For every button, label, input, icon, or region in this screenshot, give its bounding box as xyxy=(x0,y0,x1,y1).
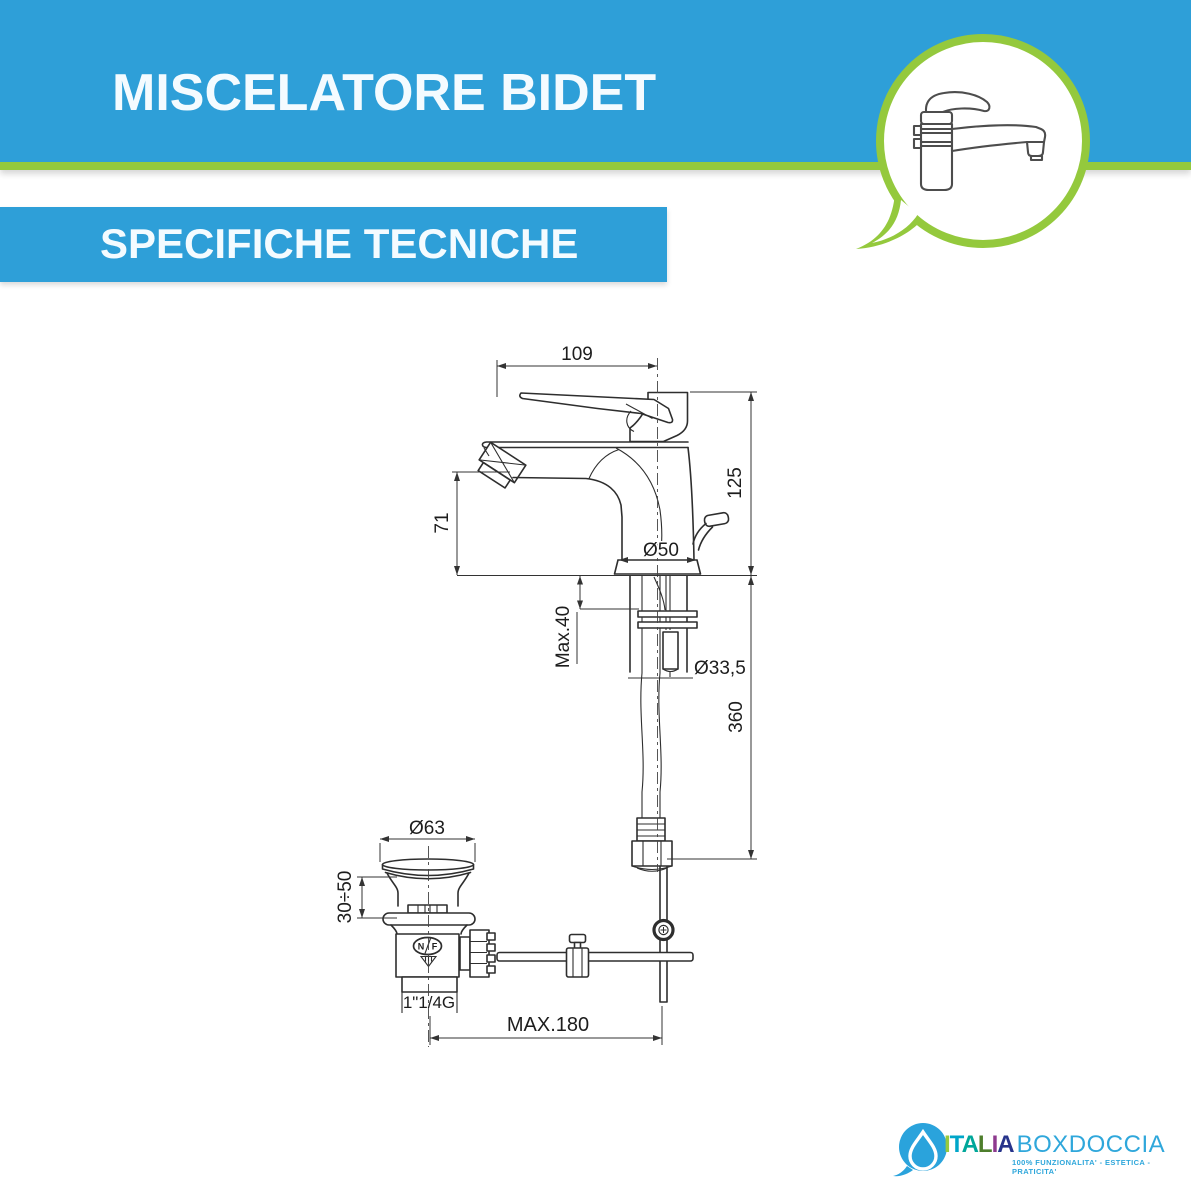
dim-spout-reach-label: 109 xyxy=(561,344,593,365)
dim-rod-reach-label: MAX.180 xyxy=(507,1014,589,1036)
brand-name-boxdoccia: BOXDOCCIA xyxy=(1017,1131,1166,1158)
dim-drain-thread-label: 1"1/4G xyxy=(403,993,455,1012)
dim-shank-diameter-label: Ø33,5 xyxy=(694,658,746,679)
spec-sheet-page: MISCELATORE BIDET SPECIFICHE TECNICHE xyxy=(0,0,1191,1191)
dim-drain-adjust-label: 30÷50 xyxy=(335,871,356,924)
dim-spout-height-label: 71 xyxy=(432,512,453,533)
drain-assembly: N F xyxy=(383,859,496,1013)
subheader-bar: SPECIFICHE TECNICHE xyxy=(0,207,667,282)
brand-logo: ITALIABOXDOCCIA 100% FUNZIONALITA' - EST… xyxy=(885,1118,1185,1188)
page-title: MISCELATORE BIDET xyxy=(112,67,656,119)
dim-deck-thickness-label: Max.40 xyxy=(553,606,574,668)
brand-letter: A xyxy=(997,1131,1013,1158)
dim-hose-length-label: 360 xyxy=(726,701,747,733)
brand-letter: T xyxy=(950,1131,962,1158)
product-icon-bubble xyxy=(848,18,1100,258)
nf-mark-f: F xyxy=(432,942,438,952)
subheader-title: SPECIFICHE TECNICHE xyxy=(100,223,578,265)
brand-letter: L xyxy=(978,1131,992,1158)
faucet-body xyxy=(474,393,729,575)
dim-total-height-label: 125 xyxy=(725,467,746,499)
brand-name-italia: ITALIA xyxy=(944,1139,1014,1156)
brand-tagline: 100% FUNZIONALITA' - ESTETICA - PRATICIT… xyxy=(1012,1158,1185,1176)
dim-drain-cap-diameter-label: Ø63 xyxy=(409,818,445,839)
faucet-below-deck xyxy=(630,576,697,1002)
technical-drawing: N F xyxy=(330,330,800,1060)
brand-letter: A xyxy=(962,1131,978,1158)
nf-mark-n: N xyxy=(418,942,425,952)
dim-base-diameter-label: Ø50 xyxy=(643,540,679,561)
